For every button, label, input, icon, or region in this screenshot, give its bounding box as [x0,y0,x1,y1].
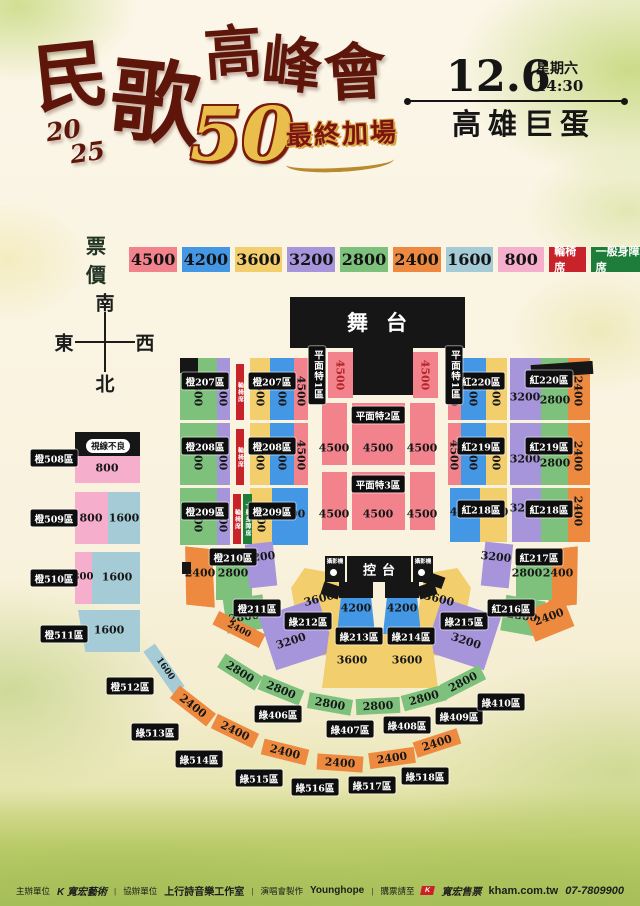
title-finale-badge: 最終加場 [286,120,399,150]
legend-chip-dis: 一般身障席 [591,247,640,272]
legend-chip-4200: 4200 [182,247,230,272]
section-label[interactable]: 綠516區 [292,779,339,796]
price-text: 4500 [407,442,438,455]
ticket-url[interactable]: kham.com.tw [489,885,559,897]
title-year-bottom: 25 [68,138,106,168]
compass-axis-horizontal [75,341,135,343]
legend-chip-4500: 4500 [129,247,177,272]
kham-ticket-logo: K [421,886,436,895]
seat-zone-4500[interactable] [322,403,347,465]
section-label[interactable]: 紅219區 [458,438,505,455]
wheelchair-strip[interactable]: 輪椅席 [236,429,244,485]
footer-organizer-label: 主辦單位 [16,885,50,897]
legend-chip-1600: 1600 [446,247,494,272]
section-label[interactable]: 綠514區 [176,751,223,768]
price-text: 4500 [419,360,432,391]
section-label[interactable]: 橙208區 [182,438,229,455]
legend-chip-wheel: 輪椅席 [549,247,585,272]
section-label[interactable]: 橙209區 [182,503,229,520]
compass-east: 東 [54,329,73,356]
stage-runway [353,348,413,395]
price-text: 1600 [94,624,125,637]
footer-bar: 主辦單位 K 寬宏藝術 | 協辦單位 上行詩音樂工作室 | 演唱會製作 Youn… [0,883,640,898]
section-label[interactable]: 橙509區 [31,510,78,527]
price-text: 1600 [102,571,133,584]
section-label[interactable]: 橙207區 [182,373,229,390]
section-label[interactable]: 綠517區 [349,777,396,794]
section-label[interactable]: 橙209區 [249,503,296,520]
legend-caption: 票價 [86,230,121,288]
section-label[interactable]: 紅218區 [526,501,573,518]
section-label[interactable]: 綠410區 [478,694,525,711]
price-text: 2400 [324,755,355,770]
price-text: 4500 [295,440,308,471]
section-label[interactable]: 橙207區 [249,373,296,390]
legend-chip-3200: 3200 [287,247,335,272]
compass-north: 北 [95,370,114,397]
seat-zone-4500[interactable] [410,403,435,465]
pill-label: 視線不良 [85,438,131,454]
price-text: 2400 [185,567,216,580]
section-label[interactable]: 紅218區 [458,501,505,518]
seat-zone-4500[interactable] [410,472,435,530]
price-legend: 票價 4500420036003200280024001600800輪椅席一般身… [86,230,640,288]
section-label[interactable]: 平面特1區 [309,346,326,404]
price-text: 2400 [572,496,585,527]
legend-chip-2400: 2400 [393,247,441,272]
riser-block [385,582,419,598]
footer-coorganizer-label: 協辦單位 [123,885,157,897]
poster-canvas: 民 歌 高 峰 會 20 25 50 最終加場 12.6 星期六 14:30 高… [0,0,640,906]
price-text: 4500 [295,376,308,407]
footer-ticket-label: 購票請至 [380,885,414,897]
price-text: 800 [96,462,119,475]
title-char-feng: 峰 [259,33,325,99]
section-label[interactable]: 綠408區 [384,717,431,734]
price-text: 2800 [512,567,543,580]
price-text: 4500 [319,508,350,521]
price-text: 2800 [540,394,571,407]
section-label[interactable]: 綠212區 [285,613,332,630]
section-label[interactable]: 綠213區 [336,628,383,645]
divider-line [408,100,624,102]
section-label[interactable]: 紅220區 [526,371,573,388]
price-text: 2400 [543,567,574,580]
price-text: 3600 [337,654,368,667]
title-char-min: 民 [30,36,111,117]
cam-label: 攝影機 [415,557,432,565]
section-label[interactable]: 紅216區 [488,600,535,617]
price-text: 3600 [392,654,423,667]
section-label[interactable]: 綠215區 [441,613,488,630]
price-text: 1600 [109,512,140,525]
event-time: 14:30 [536,79,583,94]
ticket-phone[interactable]: 07-7809900 [565,885,624,897]
section-label[interactable]: 平面特1區 [446,346,463,404]
price-text: 2400 [572,441,585,472]
title-50: 50 [190,98,293,172]
section-label[interactable]: 綠214區 [388,628,435,645]
section-label[interactable]: 綠406區 [255,706,302,723]
strip-label: 輪椅席 [233,509,242,530]
footer-production: Younghope [310,885,364,896]
price-text: 2800 [218,567,249,580]
section-label[interactable]: 紅220區 [458,373,505,390]
price-text: 4500 [334,360,347,391]
price-text: 800 [80,512,103,525]
section-label[interactable]: 綠409區 [436,708,483,725]
footer-separator: | [251,886,253,896]
price-text: 4200 [387,602,418,615]
section-label[interactable]: 紅217區 [516,549,563,566]
seat-zone-4500[interactable] [322,472,347,530]
legend-chip-800: 800 [498,247,544,272]
section-label[interactable]: 橙512區 [107,678,154,695]
price-text: 2400 [572,376,585,407]
venue-name: 高雄巨蛋 [452,110,596,139]
legend-chip-2800: 2800 [340,247,388,272]
section-label[interactable]: 綠513區 [132,724,179,741]
section-label[interactable]: 橙208區 [249,438,296,455]
section-label[interactable]: 橙508區 [31,450,78,467]
price-text: 4500 [407,508,438,521]
title-char-gao: 高 [202,22,264,84]
cam-label: 攝影機 [327,557,344,565]
strip-label: 輪椅席 [236,382,245,403]
price-text: 4500 [363,442,394,455]
price-text: 4500 [363,508,394,521]
section-label[interactable]: 綠407區 [327,721,374,738]
legend-chip-3600: 3600 [235,247,283,272]
section-label[interactable]: 綠515區 [236,770,283,787]
footer-separator: | [114,886,116,896]
compass-south: 南 [95,289,114,316]
wheelchair-strip[interactable]: 輪椅席 [233,494,241,544]
section-label[interactable]: 橙210區 [210,549,257,566]
title-char-hui: 會 [322,40,387,105]
price-text: 2800 [362,699,393,714]
price-text: 2800 [540,457,571,470]
section-label[interactable]: 平面特2區 [352,407,405,424]
event-weekday: 星期六 [536,62,578,76]
price-text: 4200 [341,602,372,615]
stage-label: 舞台 [329,307,425,337]
riser-block [339,582,373,598]
compass-west: 西 [135,329,154,356]
kham-ticket-brand: 寬宏售票 [442,883,482,898]
footer-separator: | [371,886,373,896]
section-label[interactable]: 橙510區 [31,570,78,587]
price-text: 4500 [319,442,350,455]
section-label[interactable]: 橙511區 [41,626,88,643]
price-text: 3200 [510,391,541,404]
strip-label: 輪椅席 [236,447,245,468]
section-label[interactable]: 紅219區 [526,438,573,455]
footer-production-label: 演唱會製作 [260,885,303,897]
camera-lens-dot [418,569,425,576]
section-label[interactable]: 平面特3區 [352,476,405,493]
section-label[interactable]: 綠518區 [402,768,449,785]
camera-lens-dot [330,569,337,576]
section-label[interactable]: 橙211區 [234,600,281,617]
projector-box [180,358,198,373]
wheelchair-strip[interactable]: 輪椅席 [236,364,244,420]
console-label: 控台 [357,560,401,579]
kham-art-logo: K 寬宏藝術 [57,883,107,898]
footer-coorganizer: 上行詩音樂工作室 [164,883,244,898]
